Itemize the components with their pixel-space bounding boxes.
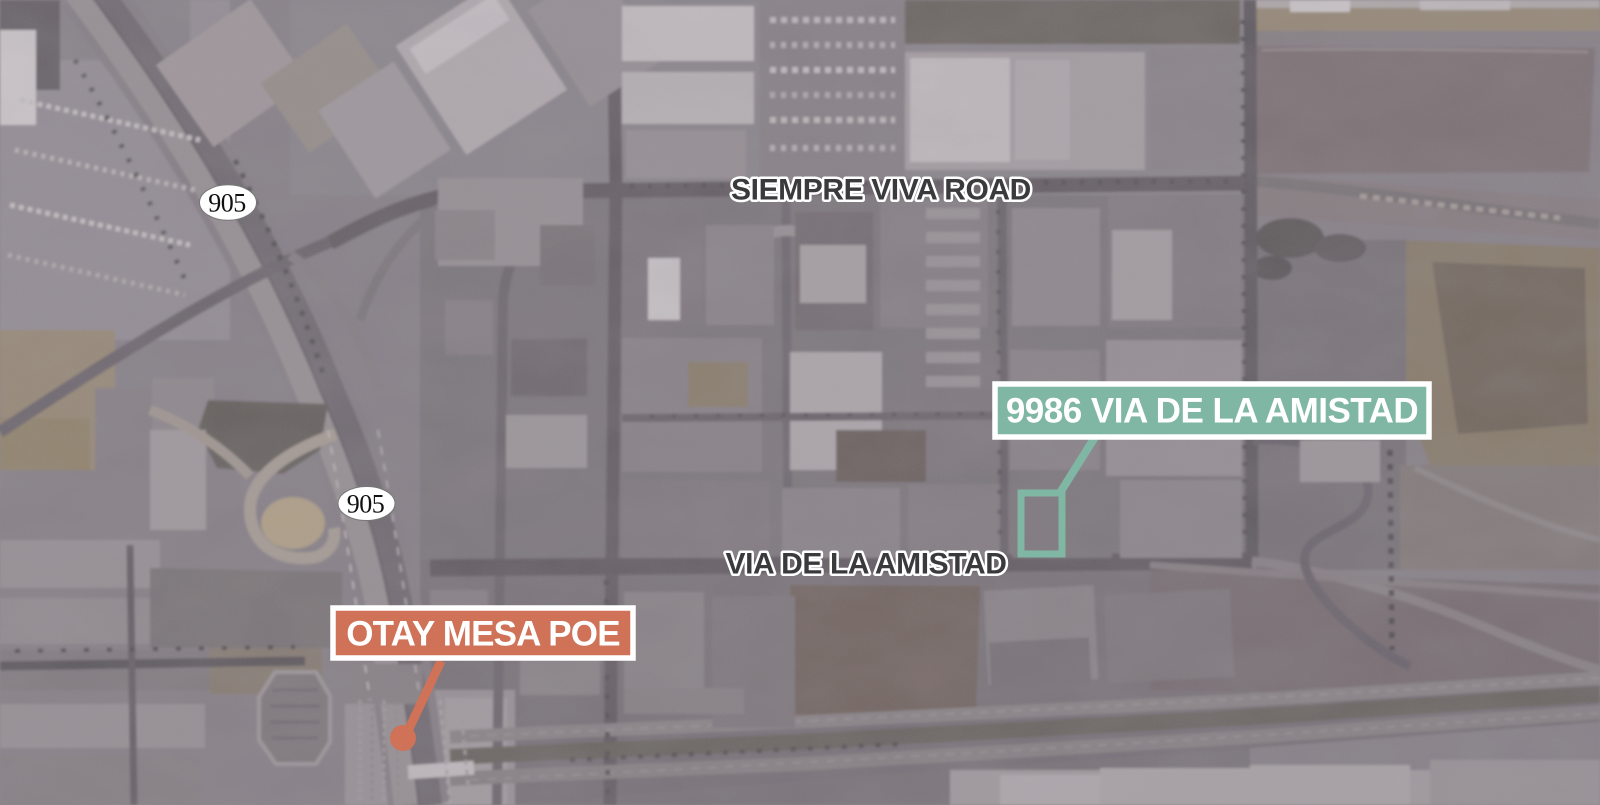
svg-text:905: 905 [208,189,246,218]
svg-text:OTAY MESA POE: OTAY MESA POE [346,615,620,654]
svg-text:905: 905 [347,490,385,519]
svg-text:9986 VIA DE LA AMISTAD: 9986 VIA DE LA AMISTAD [1006,392,1418,431]
svg-text:VIA DE LA AMISTAD: VIA DE LA AMISTAD [726,548,1007,581]
svg-text:SIEMPRE VIVA ROAD: SIEMPRE VIVA ROAD [731,174,1031,207]
